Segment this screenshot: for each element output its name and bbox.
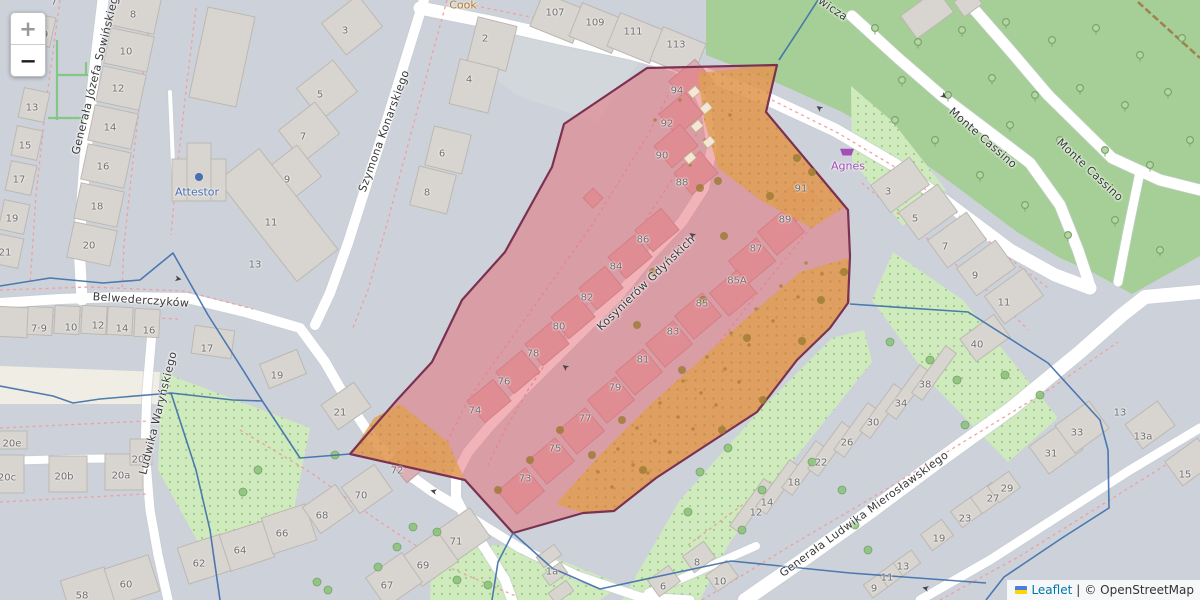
- zoom-out-button[interactable]: −: [11, 45, 45, 76]
- attribution-separator: |: [1076, 580, 1080, 600]
- zoom-in-button[interactable]: +: [11, 13, 45, 45]
- map-canvas: [0, 0, 1200, 600]
- ukraine-flag-icon: [1015, 586, 1027, 594]
- attribution-bar: Leaflet | © OpenStreetMap: [1007, 580, 1200, 600]
- leaflet-link[interactable]: Leaflet: [1031, 580, 1072, 600]
- zoom-control: + −: [10, 12, 46, 77]
- openstreetmap-link[interactable]: © OpenStreetMap: [1084, 580, 1194, 600]
- leaflet-map[interactable]: 7891012131415161718192021357911132468107…: [0, 0, 1200, 600]
